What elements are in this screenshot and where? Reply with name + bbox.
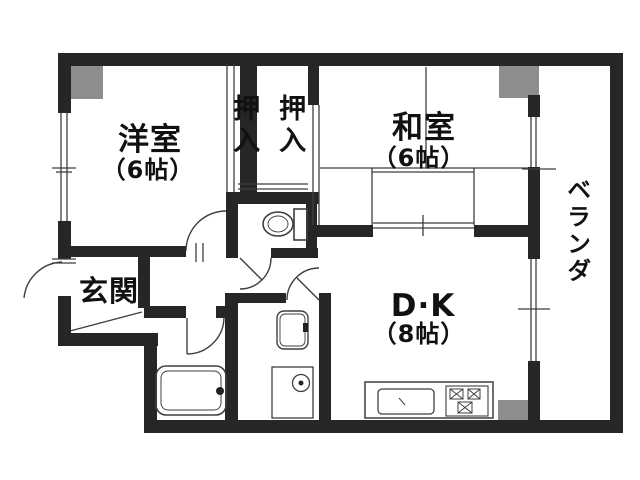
room-label-dk: D·K xyxy=(391,290,456,323)
room-label-japanese: 和室 xyxy=(392,112,456,145)
room-size-dk: （8帖） xyxy=(373,322,466,347)
room-label-veranda: ベランダ xyxy=(563,177,588,285)
floor-plan: 洋室 （6帖） 押入 押入 和室 （6帖） D·K （8帖） 玄関 ベランダ xyxy=(0,0,640,480)
washbasin-icon xyxy=(277,311,308,349)
toilet-icon xyxy=(263,209,307,240)
room-size-western: （6帖） xyxy=(102,158,195,183)
kitchen-sink-icon xyxy=(378,389,434,414)
washing-machine-icon xyxy=(272,367,313,418)
entrance-step xyxy=(70,312,142,331)
floor-plan-drawing xyxy=(0,0,640,480)
room-label-closet-left: 押入 xyxy=(229,94,257,158)
bathtub-icon xyxy=(156,366,226,415)
room-label-closet-right: 押入 xyxy=(275,94,303,158)
gas-stove-icon xyxy=(446,386,488,416)
kitchen-counter xyxy=(365,382,493,418)
room-label-western: 洋室 xyxy=(118,124,182,157)
walls xyxy=(58,53,623,433)
room-label-entrance: 玄関 xyxy=(79,276,139,306)
room-size-japanese: （6帖） xyxy=(373,146,466,171)
